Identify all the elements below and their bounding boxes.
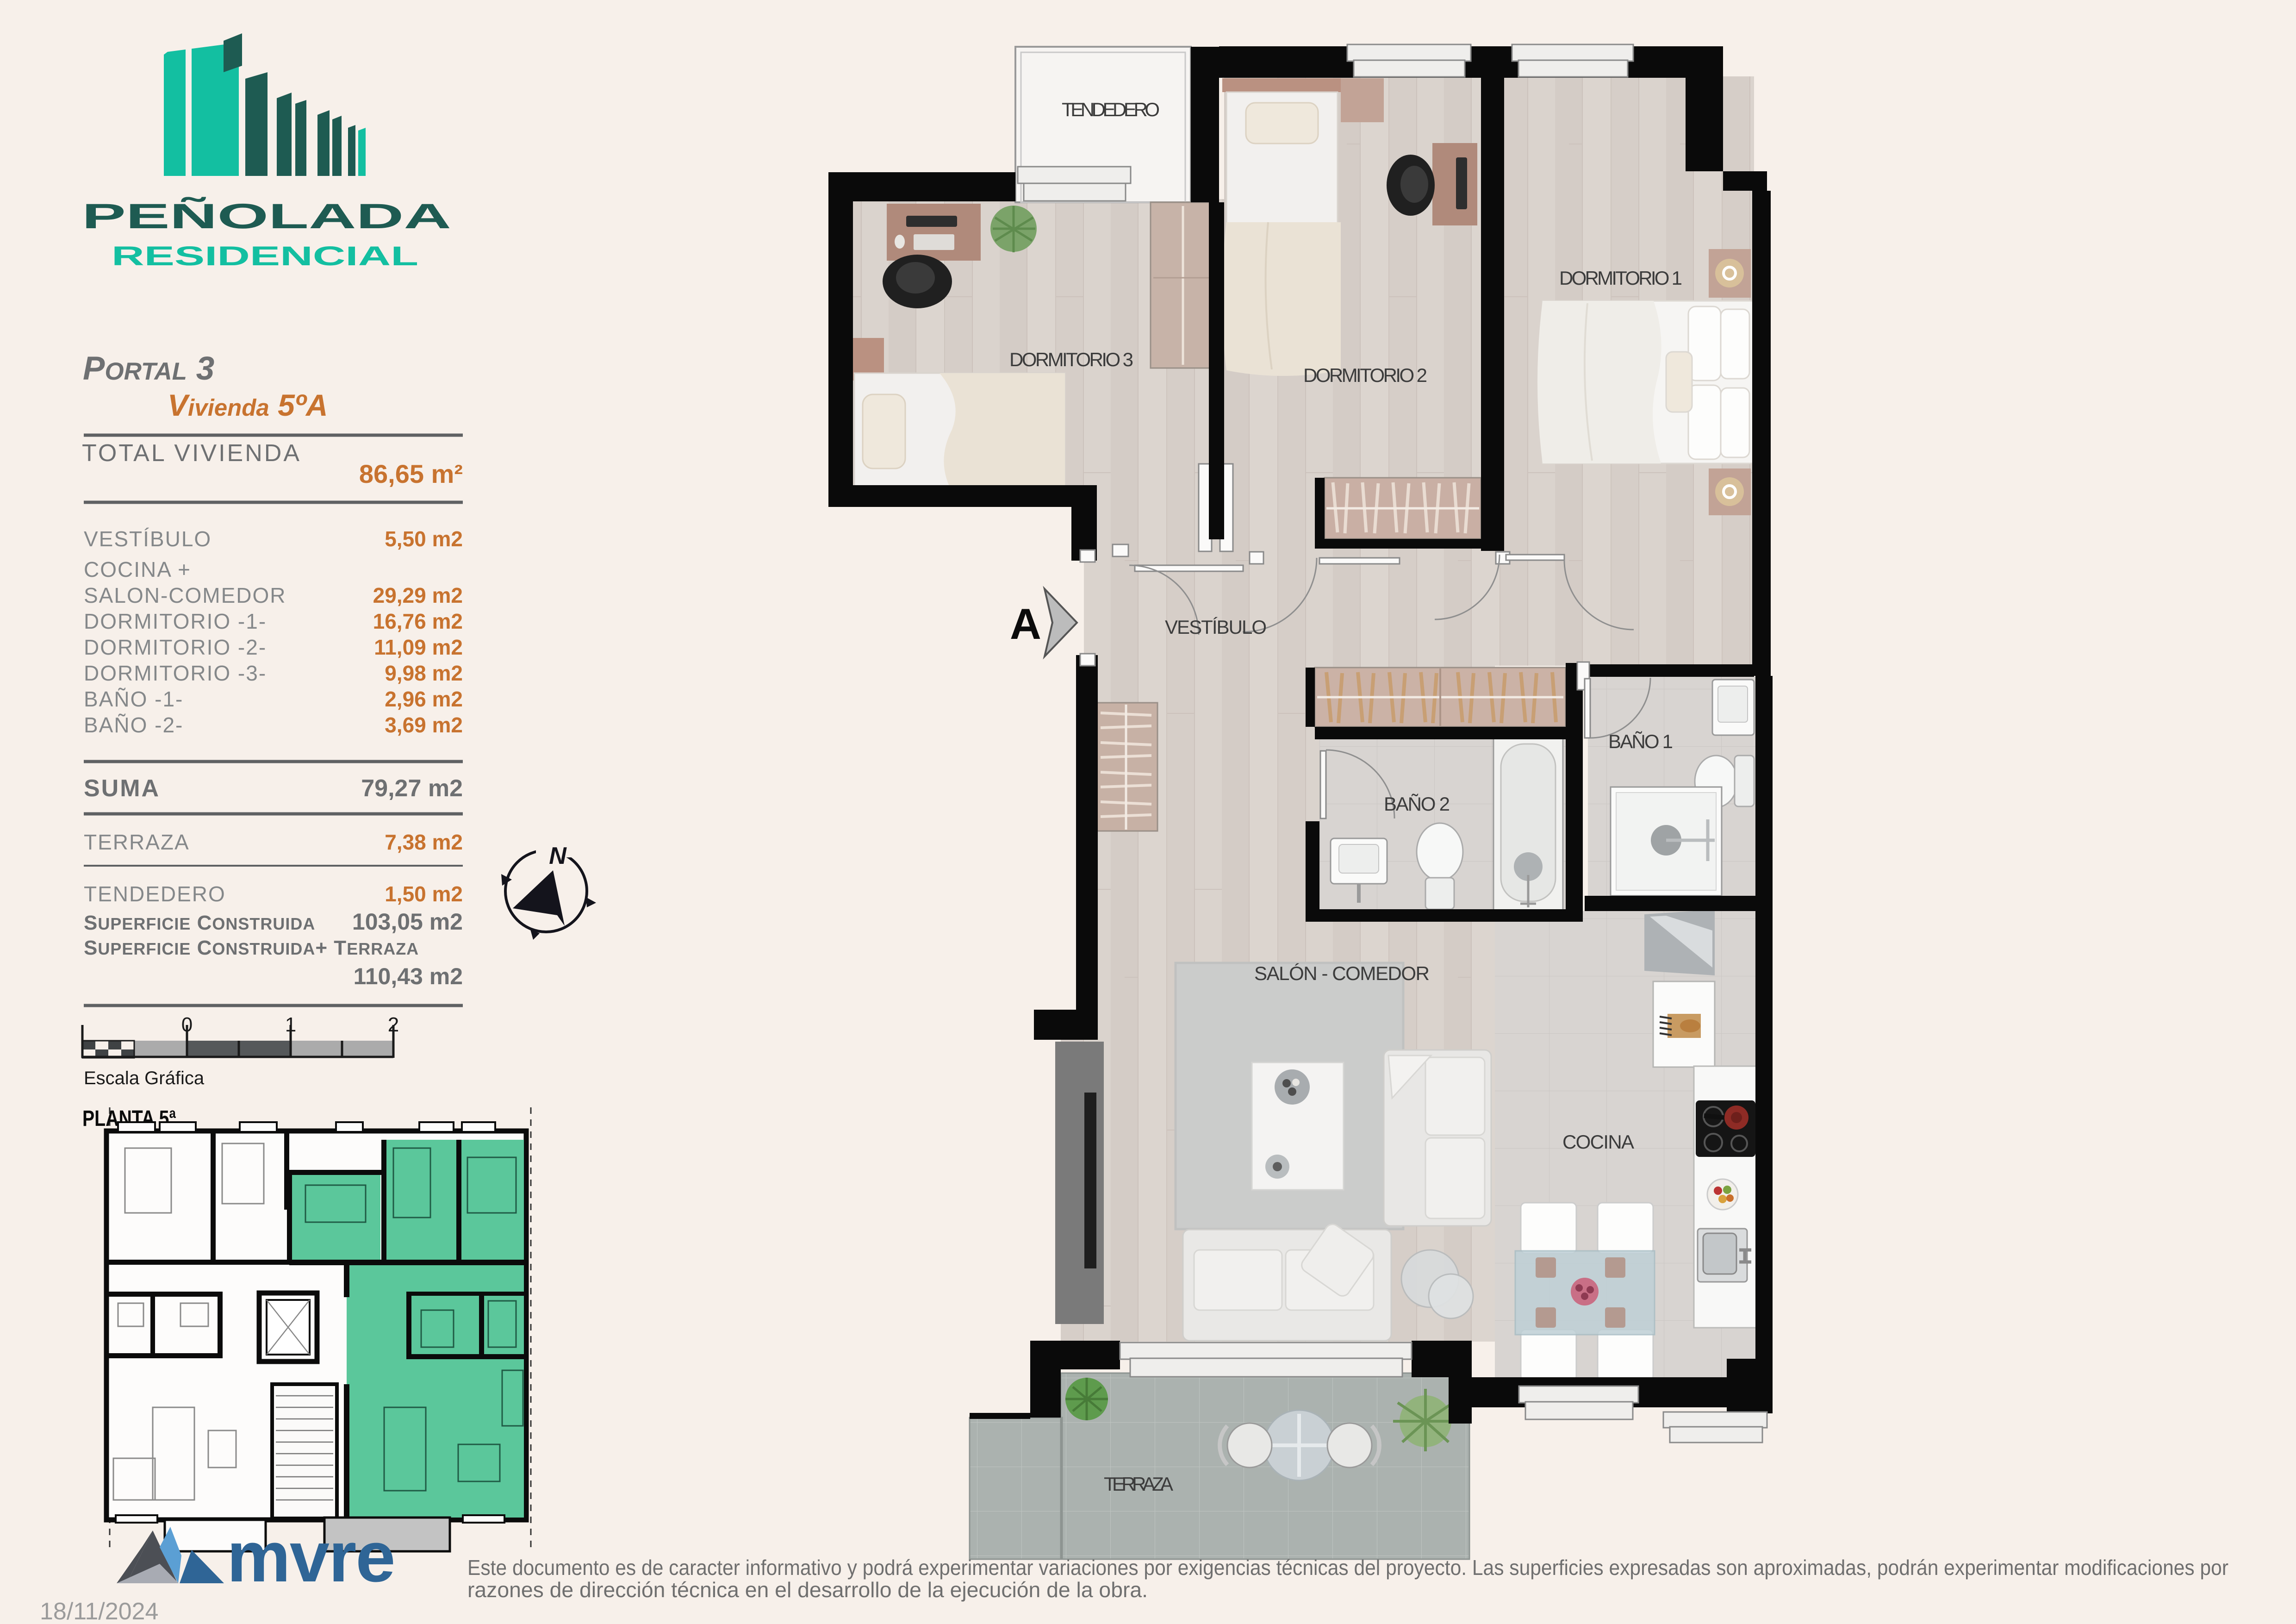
svg-text:BAÑO -2-: BAÑO -2- [84,713,183,737]
svg-text:DORMITORIO -3-: DORMITORIO -3- [84,661,267,685]
svg-text:29,29 m2: 29,29 m2 [373,583,463,607]
svg-text:VESTÍBULO: VESTÍBULO [1165,616,1267,638]
svg-text:mvre: mvre [227,1517,395,1597]
svg-text:SALÓN - COMEDOR: SALÓN - COMEDOR [1254,962,1430,984]
svg-text:RESIDENCIAL: RESIDENCIAL [112,241,418,271]
svg-text:BAÑO 1: BAÑO 1 [1608,731,1673,752]
svg-text:TERRAZA: TERRAZA [84,830,190,854]
svg-text:18/11/2024: 18/11/2024 [40,1598,158,1624]
svg-text:Este documento es de caracter: Este documento es de caracter informativ… [467,1555,2228,1580]
svg-text:Escala Gráfica: Escala Gráfica [84,1068,205,1088]
svg-text:3,69 m2: 3,69 m2 [385,713,463,737]
svg-text:DORMITORIO 3: DORMITORIO 3 [1009,349,1133,370]
svg-text:BAÑO 2: BAÑO 2 [1384,793,1450,815]
svg-text:Vivienda 5ºA: Vivienda 5ºA [168,388,328,422]
svg-text:1,50 m2: 1,50 m2 [385,882,463,906]
svg-text:razones de dirección técnica e: razones de dirección técnica en el desar… [467,1578,1148,1602]
svg-text:TERRAZA: TERRAZA [1104,1473,1173,1495]
svg-text:N: N [549,843,567,869]
svg-text:DORMITORIO 1: DORMITORIO 1 [1559,267,1682,289]
svg-text:BAÑO -1-: BAÑO -1- [84,687,183,711]
svg-text:COCINA +: COCINA + [84,557,191,581]
svg-text:79,27 m2: 79,27 m2 [361,775,463,802]
svg-text:2,96 m2: 2,96 m2 [385,687,463,711]
svg-text:DORMITORIO 2: DORMITORIO 2 [1303,364,1427,386]
svg-text:COCINA: COCINA [1562,1131,1634,1153]
svg-text:A: A [1010,600,1041,648]
svg-text:TENDEDERO: TENDEDERO [1062,99,1160,120]
svg-text:TENDEDERO: TENDEDERO [84,882,226,906]
svg-text:TOTAL VIVIENDA: TOTAL VIVIENDA [82,440,301,467]
svg-text:16,76 m2: 16,76 m2 [373,609,463,633]
svg-text:DORMITORIO -1-: DORMITORIO -1- [84,609,267,633]
svg-text:PORTAL 3: PORTAL 3 [83,350,214,387]
svg-text:86,65 m²: 86,65 m² [359,459,463,488]
svg-text:5,50 m2: 5,50 m2 [385,527,463,551]
svg-text:VESTÍBULO: VESTÍBULO [84,527,212,551]
svg-text:DORMITORIO -2-: DORMITORIO -2- [84,635,267,659]
svg-text:110,43 m2: 110,43 m2 [354,963,463,989]
svg-text:9,98 m2: 9,98 m2 [385,661,463,685]
svg-text:103,05 m2: 103,05 m2 [352,909,463,935]
svg-text:SUMA: SUMA [84,775,160,802]
svg-text:PEÑOLADA: PEÑOLADA [82,197,451,236]
svg-text:SUPERFICIE CONSTRUIDA+ TERRAZA: SUPERFICIE CONSTRUIDA+ TERRAZA [84,937,419,959]
svg-text:7,38 m2: 7,38 m2 [385,830,463,854]
svg-text:SALON-COMEDOR: SALON-COMEDOR [84,583,286,607]
svg-text:11,09 m2: 11,09 m2 [374,635,463,659]
svg-text:SUPERFICIE CONSTRUIDA: SUPERFICIE CONSTRUIDA [84,912,315,934]
